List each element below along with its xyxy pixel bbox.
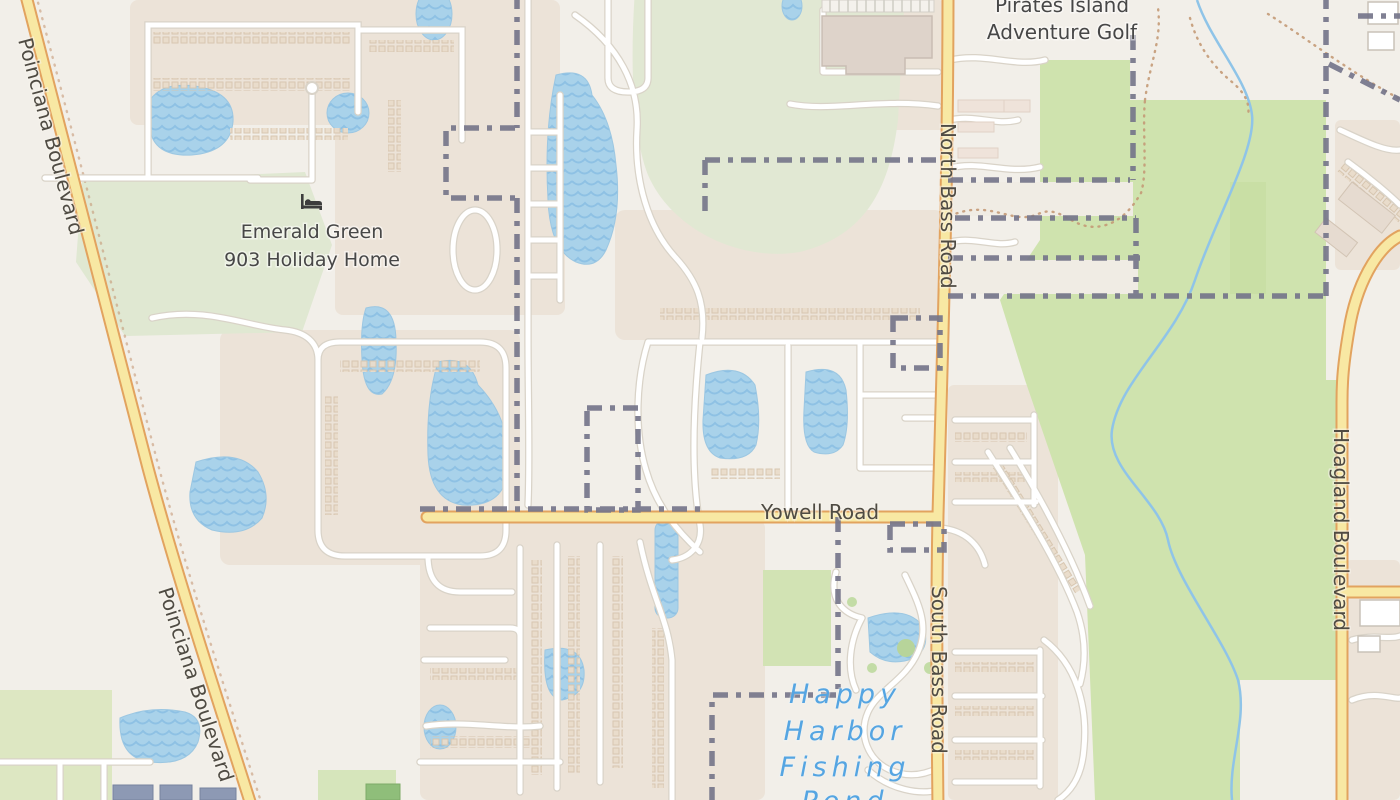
road-label-yowell: Yowell Road — [760, 500, 879, 524]
road-label-north-bass: North Bass Road — [936, 123, 960, 289]
road-label-south-bass: South Bass Road — [927, 586, 951, 754]
happy-harbor-green — [763, 570, 831, 666]
poi-label-pirates-line2: Adventure Golf — [987, 20, 1138, 44]
road-label-poinciana-north: Poinciana Boulevard — [13, 35, 89, 237]
map-canvas[interactable]: Poinciana Boulevard Poinciana Boulevard … — [0, 0, 1400, 800]
poi-label-pirates-line1: Pirates Island — [995, 0, 1129, 17]
green-band-cover-2 — [948, 260, 1138, 294]
poi-label-emerald-line2: 903 Holiday Home — [224, 249, 400, 271]
pond-island — [897, 639, 915, 657]
water-label-happy: Happy — [789, 679, 901, 710]
green-band-cover-1 — [948, 182, 1133, 216]
bottomleft-green — [0, 690, 112, 800]
pool-building — [366, 784, 400, 800]
water-label-fishing: Fishing — [780, 752, 911, 783]
cul-de-sac — [306, 82, 318, 94]
water-label-pond: Pond — [801, 786, 888, 800]
pirates-small-green — [1230, 182, 1266, 294]
water-label-harbor: Harbor — [784, 716, 907, 747]
poi-label-emerald-line1: Emerald Green — [241, 221, 384, 243]
road-label-hoagland: Hoagland Boulevard — [1329, 428, 1353, 631]
